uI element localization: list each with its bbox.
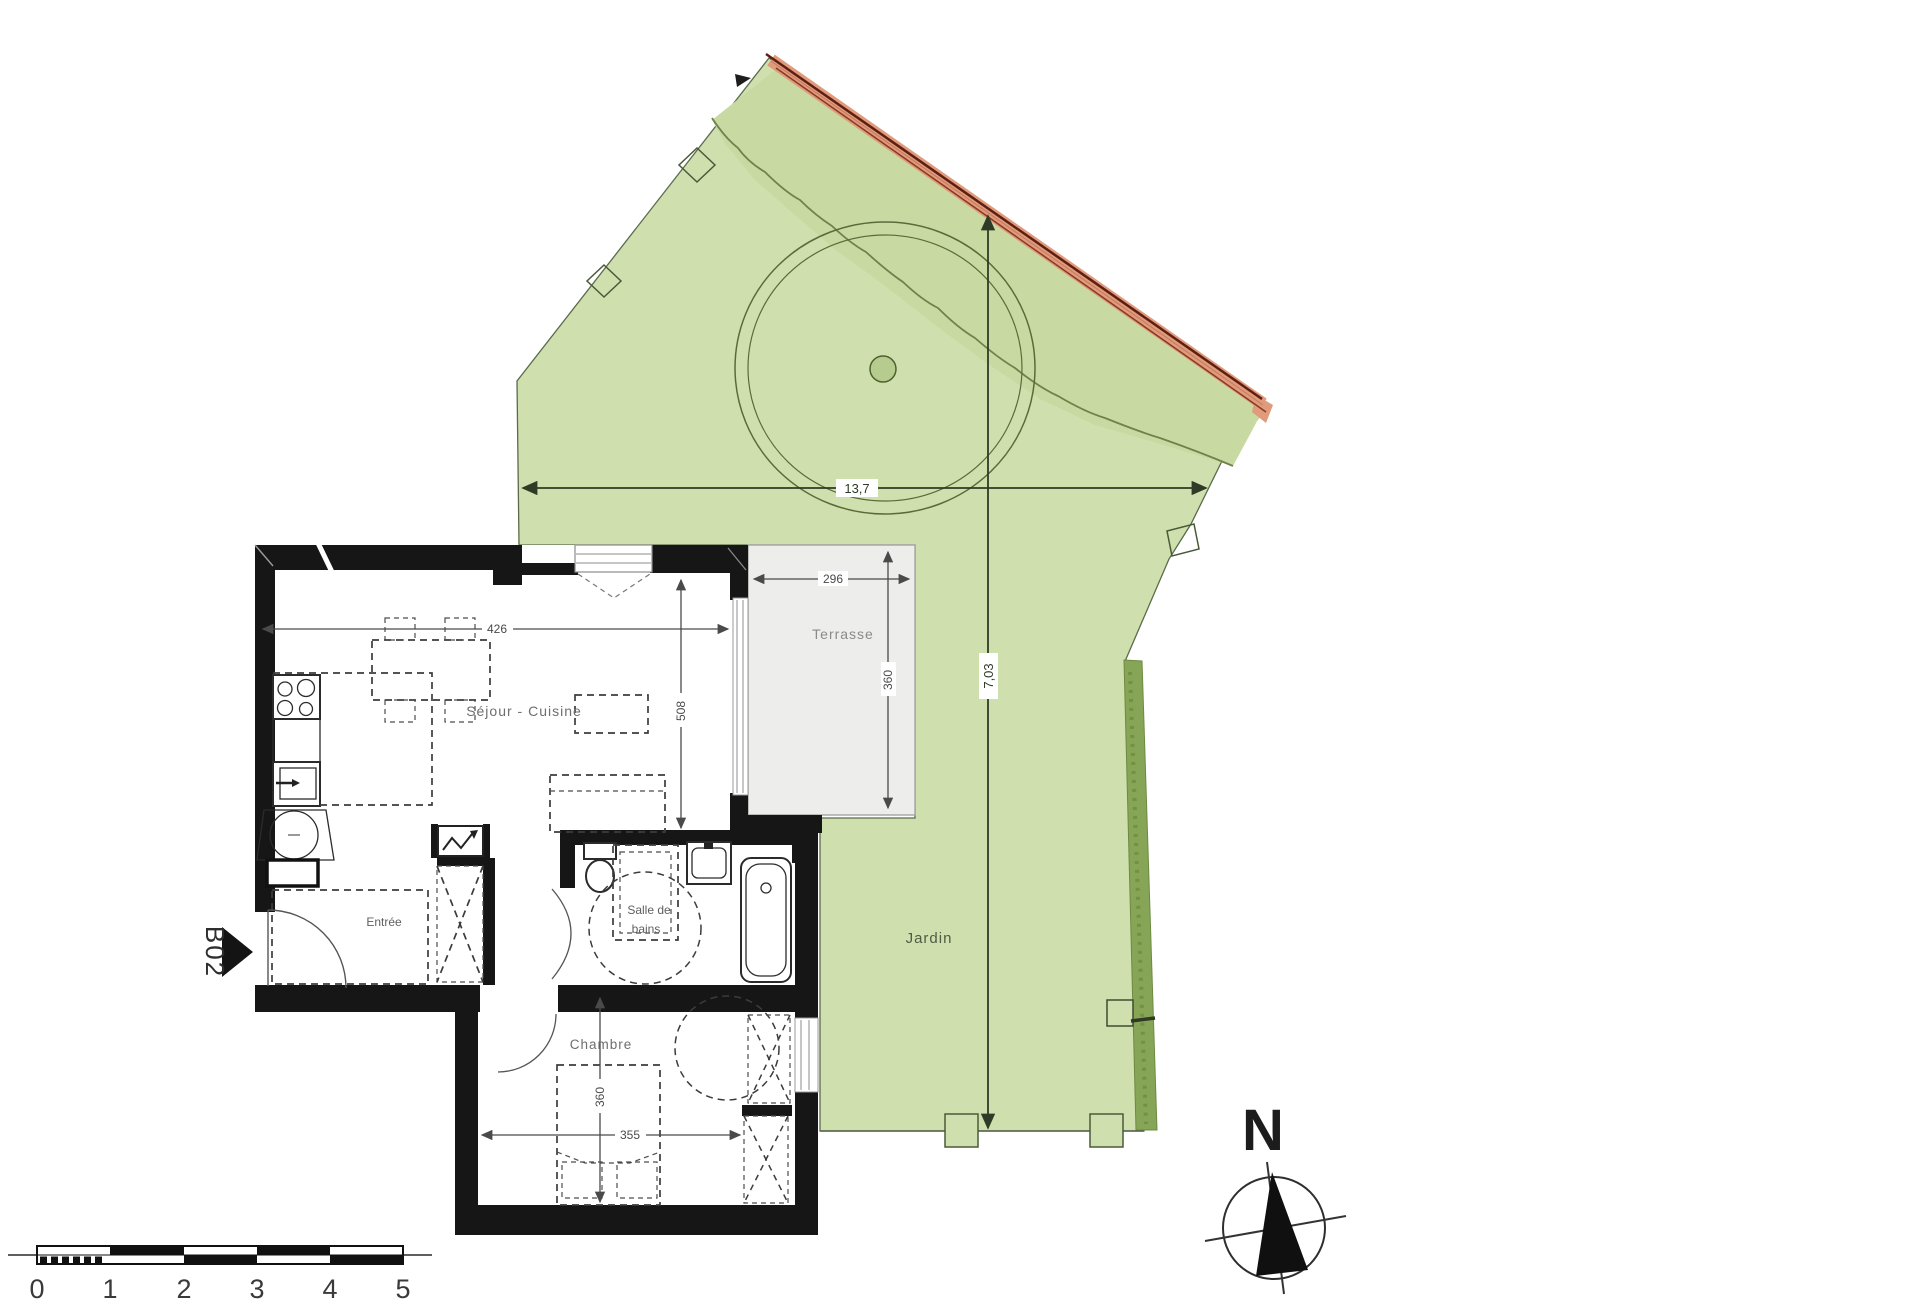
entry-label: Entrée xyxy=(366,915,402,929)
terrace-label: Terrasse xyxy=(812,626,874,642)
living-width-dim: 426 xyxy=(487,622,507,636)
cabinet xyxy=(267,860,318,886)
vanity-sink xyxy=(687,842,731,884)
bedroom-label: Chambre xyxy=(570,1037,633,1052)
bedroom-width-dim: 355 xyxy=(620,1128,640,1142)
terrace-width-dim: 296 xyxy=(823,572,843,586)
scale-tick-3: 3 xyxy=(249,1274,264,1304)
terrace-height-dim: 360 xyxy=(881,670,895,690)
bedroom-height-dim: 360 xyxy=(593,1087,607,1107)
garden-label: Jardin xyxy=(906,930,953,947)
floor-plan-page: 13,7 7,03 Jardin 296 360 Terrasse xyxy=(0,0,1920,1310)
electrical-panel xyxy=(431,824,490,858)
living-room-label: Séjour - Cuisine xyxy=(466,703,582,719)
scale-tick-2: 2 xyxy=(176,1274,191,1304)
unit-label: B02 xyxy=(200,926,230,978)
scale-tick-5: 5 xyxy=(395,1274,410,1304)
apartment-floor-west xyxy=(255,545,750,1235)
scale-tick-1: 1 xyxy=(102,1274,117,1304)
unit-marker: B02 xyxy=(200,926,253,978)
bathtub xyxy=(741,858,791,982)
window-terrace-door xyxy=(733,598,748,795)
boundary-marker-sq-2 xyxy=(1090,1114,1123,1147)
scale-tick-0: 0 xyxy=(29,1274,44,1304)
floor-plan-canvas: 13,7 7,03 Jardin 296 360 Terrasse xyxy=(0,0,1920,1310)
north-letter: N xyxy=(1242,1098,1284,1163)
garden-width-dim: 13,7 xyxy=(844,481,869,496)
scale-tick-4: 4 xyxy=(322,1274,337,1304)
garden-height-dim: 7,03 xyxy=(981,663,996,688)
boundary-marker-sq-1 xyxy=(945,1114,978,1147)
toilet xyxy=(584,843,616,892)
apartment: 296 360 Terrasse xyxy=(200,543,915,1235)
window-east xyxy=(795,1018,818,1092)
bathroom-label-2: bains xyxy=(632,922,661,936)
bathroom-label-1: Salle de xyxy=(627,903,671,917)
stove xyxy=(273,675,320,719)
north-compass: N xyxy=(1205,1098,1346,1294)
terrace: 296 360 Terrasse xyxy=(748,545,915,815)
living-height-dim: 508 xyxy=(674,701,688,721)
scale-bar: 0 1 2 3 4 5 xyxy=(8,1246,432,1304)
